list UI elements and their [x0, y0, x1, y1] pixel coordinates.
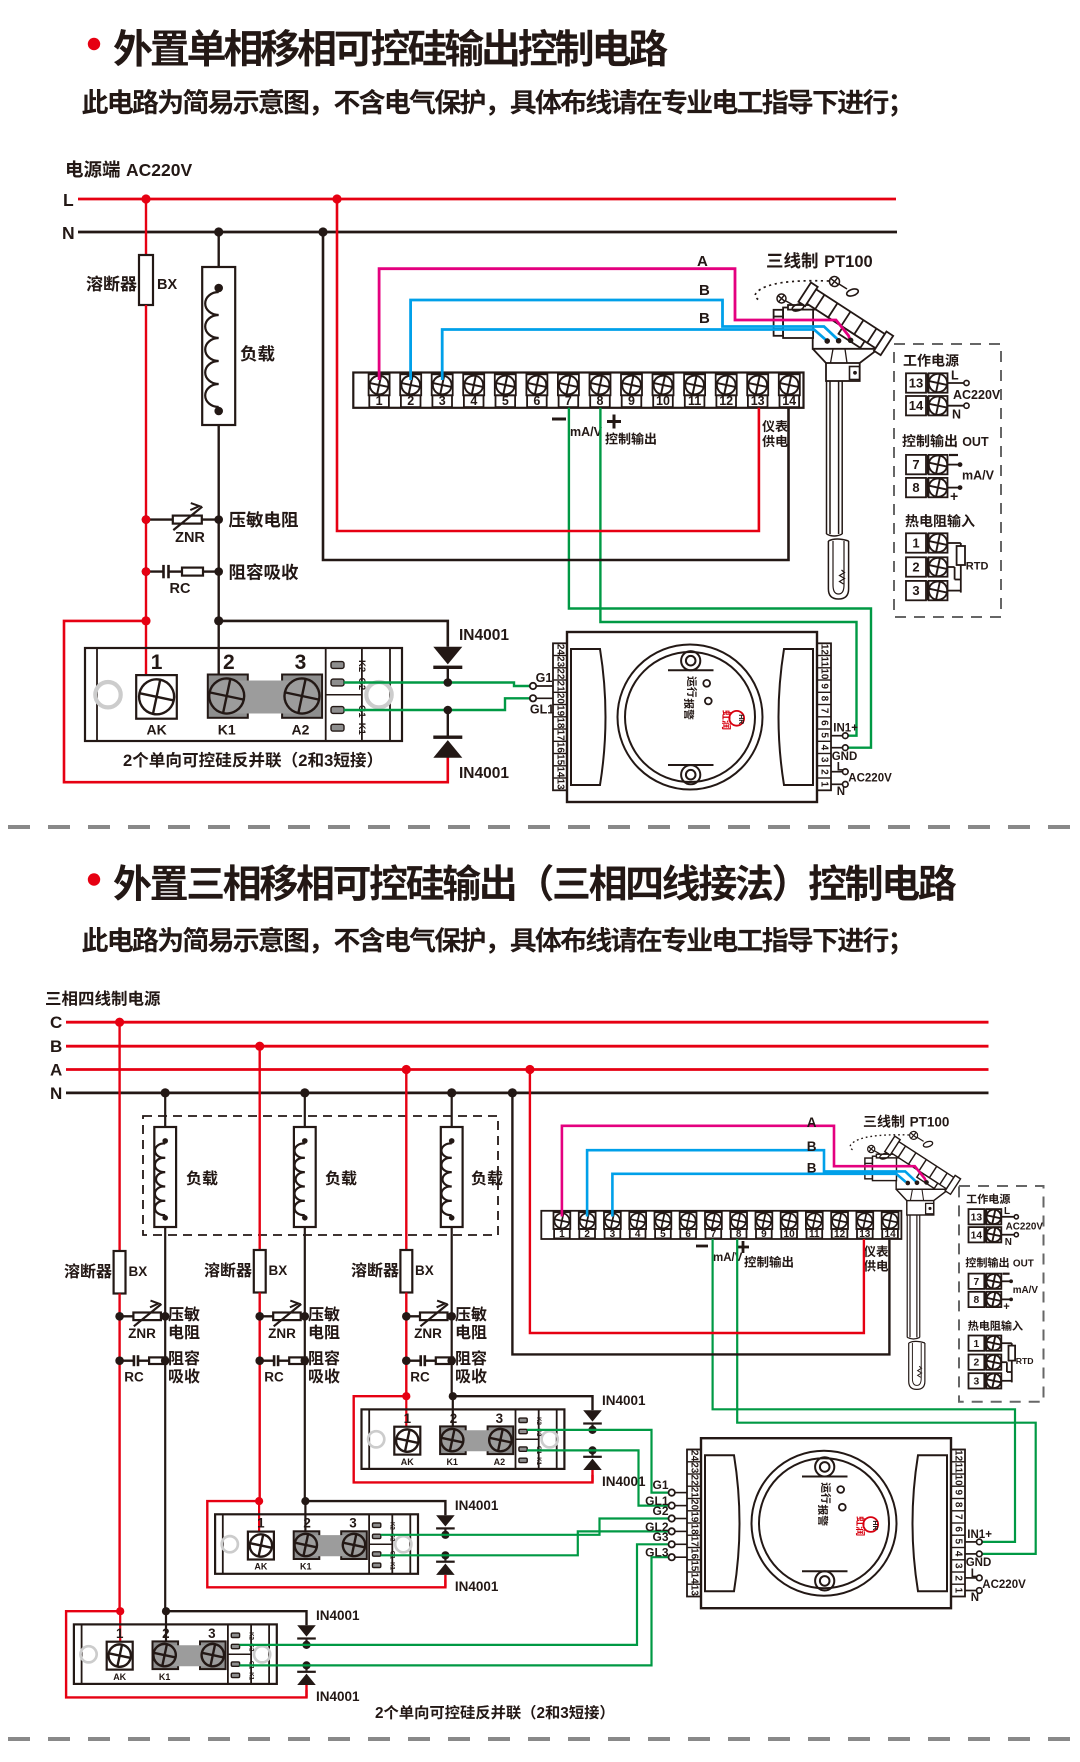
svg-text:6: 6: [533, 394, 540, 408]
svg-text:1: 1: [116, 1626, 124, 1641]
svg-text:20: 20: [689, 1499, 700, 1511]
svg-text:PT100: PT100: [910, 1115, 950, 1130]
svg-text:PT100: PT100: [824, 253, 873, 271]
svg-text:12: 12: [819, 644, 830, 656]
svg-text:G3: G3: [652, 1530, 668, 1544]
svg-text:A: A: [50, 1061, 62, 1080]
svg-text:2: 2: [223, 651, 235, 674]
svg-text:AC220V: AC220V: [1006, 1222, 1044, 1233]
svg-text:14: 14: [909, 398, 924, 413]
svg-text:N: N: [837, 786, 845, 798]
svg-text:G2: G2: [356, 678, 367, 691]
svg-text:3: 3: [295, 651, 307, 674]
svg-text:23: 23: [555, 656, 566, 668]
svg-text:4: 4: [635, 1229, 641, 1240]
svg-text:OUT: OUT: [1013, 1259, 1034, 1270]
svg-text:1: 1: [151, 651, 163, 674]
svg-text:2: 2: [375, 1705, 384, 1722]
svg-text:13: 13: [555, 779, 566, 791]
svg-text:K1: K1: [247, 1672, 254, 1680]
svg-text:11: 11: [819, 656, 830, 667]
svg-text:7: 7: [711, 1229, 717, 1240]
svg-text:18: 18: [689, 1524, 700, 1536]
svg-text:+: +: [950, 488, 958, 504]
svg-text:2: 2: [819, 769, 830, 775]
svg-text:RTD: RTD: [1016, 1356, 1034, 1366]
svg-text:5: 5: [819, 732, 830, 738]
svg-text:BX: BX: [415, 1263, 434, 1278]
svg-text:IN4001: IN4001: [459, 627, 509, 644]
svg-text:5: 5: [953, 1539, 964, 1545]
svg-text:20: 20: [555, 693, 566, 705]
svg-text:2: 2: [303, 1516, 310, 1531]
svg-text:IN4001: IN4001: [459, 765, 509, 782]
svg-text:BX: BX: [269, 1263, 288, 1278]
svg-text:K1: K1: [535, 1457, 542, 1465]
svg-text:HR: HR: [871, 1520, 878, 1530]
svg-text:GND: GND: [966, 1557, 992, 1569]
svg-text:21: 21: [555, 681, 566, 693]
svg-text:2: 2: [162, 1626, 169, 1641]
svg-text:16: 16: [555, 742, 566, 754]
svg-text:N: N: [62, 223, 75, 243]
svg-text:17: 17: [689, 1536, 700, 1548]
svg-text:K1: K1: [300, 1562, 312, 1572]
svg-text:2: 2: [584, 1229, 590, 1240]
svg-text:AK: AK: [113, 1672, 126, 1682]
svg-text:8: 8: [597, 394, 604, 408]
svg-text:8: 8: [974, 1295, 980, 1306]
svg-text:B: B: [807, 1161, 817, 1176]
svg-text:4: 4: [470, 394, 477, 408]
svg-text:22: 22: [689, 1475, 700, 1487]
svg-text:RC: RC: [124, 1370, 144, 1385]
svg-text:14: 14: [555, 766, 566, 778]
svg-text:K1: K1: [389, 1562, 396, 1570]
svg-text:1: 1: [376, 394, 383, 408]
svg-text:1: 1: [912, 536, 919, 551]
svg-text:IN4001: IN4001: [316, 1689, 360, 1704]
svg-text:11: 11: [953, 1463, 964, 1474]
svg-text:A: A: [807, 1115, 817, 1130]
svg-text:12: 12: [719, 394, 733, 408]
svg-text:AC220V: AC220V: [982, 1579, 1026, 1591]
svg-text:K2: K2: [356, 660, 367, 672]
svg-text:2: 2: [407, 394, 414, 408]
svg-text:9: 9: [761, 1229, 767, 1240]
svg-text:K1: K1: [356, 723, 367, 736]
svg-text:10: 10: [784, 1229, 796, 1240]
svg-text:G2: G2: [652, 1504, 668, 1518]
svg-text:3: 3: [439, 394, 446, 408]
svg-text:2: 2: [450, 1411, 457, 1426]
svg-text:13: 13: [859, 1229, 871, 1240]
svg-text:15: 15: [689, 1560, 700, 1572]
svg-text:G1: G1: [536, 671, 553, 685]
svg-text:+: +: [1003, 1301, 1010, 1313]
svg-text:2: 2: [953, 1575, 964, 1581]
svg-text:14: 14: [885, 1229, 897, 1240]
svg-text:7: 7: [953, 1514, 964, 1520]
svg-text:6: 6: [819, 720, 830, 726]
svg-text:ZNR: ZNR: [128, 1326, 156, 1341]
svg-text:14: 14: [782, 394, 796, 408]
svg-text:12: 12: [953, 1450, 964, 1462]
svg-text:IN4001: IN4001: [316, 1608, 360, 1623]
svg-text:ZNR: ZNR: [175, 530, 205, 546]
svg-text:4: 4: [953, 1551, 964, 1557]
svg-text:2: 2: [537, 1705, 546, 1722]
svg-text:11: 11: [809, 1229, 820, 1240]
svg-text:OUT: OUT: [962, 435, 989, 449]
svg-text:AK: AK: [401, 1457, 414, 1467]
svg-text:2: 2: [974, 1358, 980, 1369]
svg-text:14: 14: [689, 1573, 700, 1585]
svg-text:B: B: [699, 282, 710, 299]
svg-text:10: 10: [656, 394, 670, 408]
svg-text:1: 1: [559, 1229, 565, 1240]
svg-text:ZNR: ZNR: [414, 1326, 442, 1341]
svg-text:mA/V: mA/V: [570, 425, 603, 439]
svg-text:K1: K1: [446, 1457, 458, 1467]
svg-text:3: 3: [610, 1229, 616, 1240]
svg-text:BX: BX: [129, 1264, 148, 1279]
svg-text:9: 9: [628, 394, 635, 408]
svg-text:16: 16: [689, 1548, 700, 1560]
svg-text:7: 7: [819, 708, 830, 714]
svg-text:1: 1: [819, 781, 830, 787]
svg-text:N: N: [971, 1592, 979, 1604]
svg-text:RC: RC: [264, 1370, 284, 1385]
svg-text:RC: RC: [170, 581, 191, 597]
svg-text:5: 5: [502, 394, 509, 408]
svg-text:3: 3: [349, 1516, 356, 1531]
svg-text:G1: G1: [652, 1478, 668, 1492]
svg-text:IN4001: IN4001: [455, 1579, 499, 1594]
svg-text:RC: RC: [410, 1370, 430, 1385]
svg-text:IN4001: IN4001: [455, 1498, 499, 1513]
svg-text:3: 3: [208, 1626, 215, 1641]
svg-text:AC220V: AC220V: [953, 388, 1001, 402]
svg-text:AC220V: AC220V: [848, 773, 892, 785]
svg-text:18: 18: [555, 717, 566, 729]
svg-text:N: N: [1005, 1237, 1012, 1248]
svg-text:7: 7: [974, 1277, 980, 1288]
svg-text:8: 8: [912, 480, 919, 495]
svg-text:7: 7: [565, 394, 572, 408]
svg-text:N: N: [952, 408, 961, 422]
svg-text:B: B: [699, 310, 710, 327]
svg-text:9: 9: [953, 1490, 964, 1496]
svg-text:6: 6: [685, 1229, 691, 1240]
svg-text:13: 13: [971, 1212, 983, 1223]
svg-text:4: 4: [819, 745, 830, 751]
svg-text:3: 3: [974, 1376, 980, 1387]
svg-text:2: 2: [912, 560, 919, 575]
svg-text:3: 3: [496, 1411, 503, 1426]
svg-text:17: 17: [555, 730, 566, 742]
svg-text:B: B: [50, 1037, 62, 1056]
svg-text:1: 1: [974, 1339, 980, 1350]
svg-text:1: 1: [953, 1588, 964, 1594]
svg-text:10: 10: [953, 1475, 964, 1487]
svg-text:mA/V: mA/V: [1013, 1285, 1039, 1296]
svg-text:G1: G1: [356, 705, 367, 718]
svg-text:BX: BX: [157, 277, 177, 293]
svg-text:13: 13: [751, 394, 765, 408]
svg-text:19: 19: [689, 1511, 700, 1523]
svg-text:24: 24: [689, 1450, 700, 1462]
svg-text:A: A: [697, 253, 708, 270]
svg-text:12: 12: [834, 1229, 846, 1240]
svg-text:3: 3: [560, 1705, 569, 1722]
svg-text:9: 9: [819, 683, 830, 689]
svg-text:6: 6: [953, 1526, 964, 1532]
svg-text:11: 11: [688, 394, 701, 408]
svg-text:14: 14: [971, 1230, 983, 1241]
svg-text:HR: HR: [737, 714, 744, 724]
svg-text:22: 22: [555, 668, 566, 680]
svg-text:13: 13: [689, 1585, 700, 1597]
svg-text:K2: K2: [389, 1522, 396, 1530]
svg-text:L: L: [63, 190, 74, 210]
svg-text:AC220V: AC220V: [126, 160, 192, 180]
svg-text:13: 13: [909, 376, 923, 391]
svg-text:K2: K2: [247, 1632, 254, 1640]
svg-text:A2: A2: [494, 1457, 506, 1467]
svg-text:K1: K1: [159, 1672, 171, 1682]
svg-text:3: 3: [324, 751, 333, 770]
svg-text:GL1: GL1: [530, 703, 554, 717]
svg-text:8: 8: [819, 696, 830, 702]
svg-text:2: 2: [298, 751, 307, 770]
svg-text:K2: K2: [535, 1417, 542, 1425]
svg-text:15: 15: [555, 754, 566, 766]
svg-text:GND: GND: [832, 751, 858, 763]
svg-text:ZNR: ZNR: [268, 1326, 296, 1341]
svg-text:B: B: [807, 1139, 817, 1154]
svg-text:L: L: [1004, 1206, 1010, 1217]
svg-text:AK: AK: [254, 1562, 267, 1572]
svg-text:RTD: RTD: [966, 561, 989, 573]
svg-text:1: 1: [257, 1516, 265, 1531]
svg-text:8: 8: [736, 1229, 742, 1240]
svg-text:10: 10: [819, 668, 830, 680]
svg-text:19: 19: [555, 705, 566, 717]
svg-text:K1: K1: [218, 722, 236, 738]
svg-text:3: 3: [912, 583, 919, 598]
svg-text:1: 1: [404, 1411, 412, 1426]
svg-text:24: 24: [555, 644, 566, 656]
svg-text:23: 23: [689, 1462, 700, 1474]
svg-text:GL3: GL3: [645, 1546, 669, 1560]
svg-text:IN4001: IN4001: [602, 1393, 646, 1408]
svg-text:AK: AK: [146, 722, 166, 738]
svg-text:3: 3: [819, 757, 830, 763]
svg-text:C: C: [50, 1013, 62, 1032]
svg-text:5: 5: [660, 1229, 666, 1240]
svg-text:2: 2: [123, 751, 132, 770]
svg-text:mA/V: mA/V: [962, 469, 995, 483]
svg-text:3: 3: [953, 1563, 964, 1569]
svg-text:21: 21: [689, 1487, 700, 1499]
svg-text:L: L: [951, 369, 959, 383]
svg-text:A2: A2: [292, 722, 310, 738]
svg-text:8: 8: [953, 1502, 964, 1508]
svg-text:N: N: [50, 1084, 62, 1103]
svg-text:7: 7: [912, 457, 919, 472]
